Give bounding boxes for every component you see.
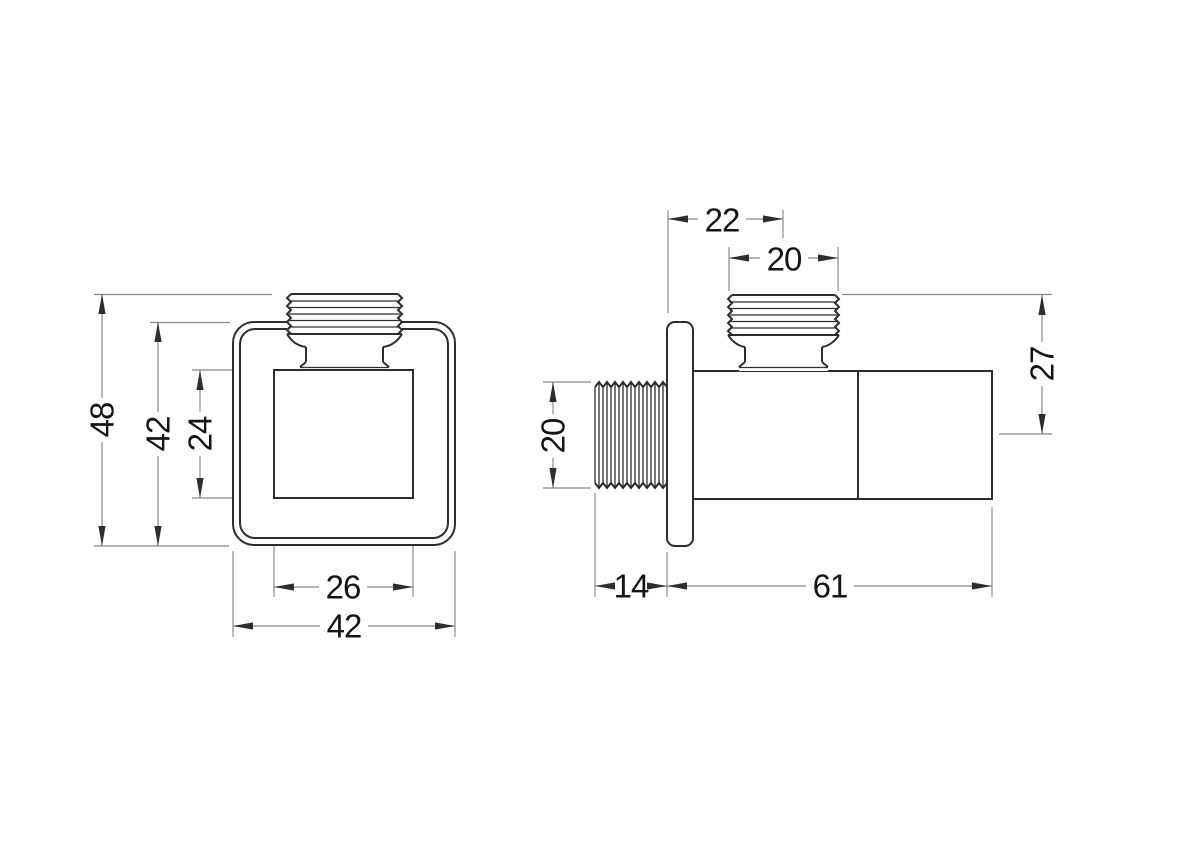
inlet-thread-side xyxy=(595,382,667,488)
dim-label-outlet-top-to-axis: 27 xyxy=(1026,347,1059,382)
dim-label-inlet-thread-height: 20 xyxy=(537,419,570,454)
dim-label-plate-width: 42 xyxy=(327,610,362,643)
technical-drawing-page: 48 42 24 26 42 22 20 20 27 14 61 xyxy=(0,0,1200,849)
dim-label-outlet-offset: 22 xyxy=(705,204,740,237)
wall-plate-side xyxy=(667,322,693,546)
valve-body-side xyxy=(693,371,992,499)
dim-label-plate-height: 42 xyxy=(142,417,175,452)
outlet-thread-side xyxy=(728,295,839,371)
dim-label-body-length: 61 xyxy=(813,570,848,603)
dim-label-body-face-width: 26 xyxy=(326,571,361,604)
valve-body-front-face xyxy=(274,370,413,498)
front-view xyxy=(233,294,455,545)
dim-label-outlet-thread-width: 20 xyxy=(767,243,802,276)
technical-drawing-canvas xyxy=(0,0,1200,849)
dim-label-overall-height: 48 xyxy=(86,403,119,438)
side-view xyxy=(595,295,992,546)
dim-label-body-face-height: 24 xyxy=(184,417,217,452)
dim-label-inlet-thread-length: 14 xyxy=(614,570,649,603)
